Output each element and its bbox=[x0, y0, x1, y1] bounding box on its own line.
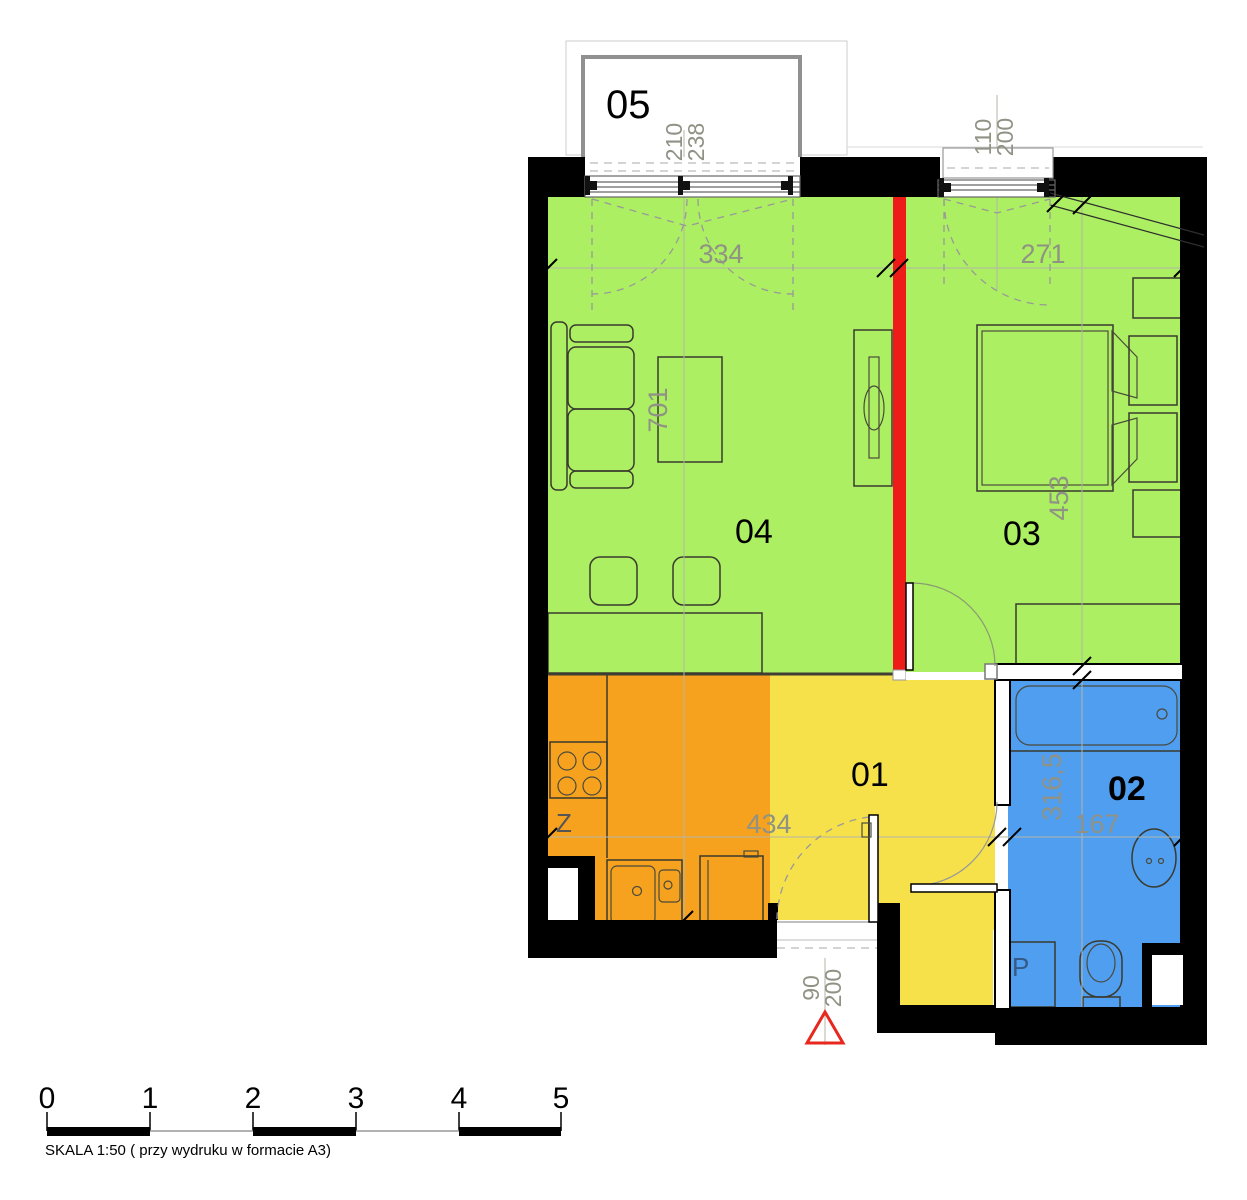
washer-label: P bbox=[1012, 952, 1029, 982]
shaft-wall bbox=[1142, 943, 1152, 1007]
room-03-doorway-floor bbox=[906, 664, 995, 672]
wall-right bbox=[1180, 157, 1207, 1045]
scale-tick-label: 3 bbox=[348, 1082, 365, 1115]
room-label-05: 05 bbox=[606, 83, 651, 127]
dim-label: 200 bbox=[820, 969, 846, 1007]
wall-bottom-kitchen bbox=[528, 920, 777, 958]
scale-tick-label: 1 bbox=[142, 1082, 159, 1115]
wall-bottom-bath bbox=[995, 1007, 1207, 1045]
bathroom-door-leaf bbox=[911, 884, 997, 892]
dim-label: 271 bbox=[1020, 239, 1065, 269]
doorway-threshold bbox=[906, 672, 995, 680]
wall-top-middle bbox=[800, 157, 940, 197]
partition-bath-left-upper bbox=[995, 680, 1010, 805]
scale-segment bbox=[47, 1127, 150, 1136]
scale-tick-label: 0 bbox=[39, 1082, 56, 1115]
door-jamb-block bbox=[985, 664, 997, 679]
entry-door-jamb bbox=[768, 903, 778, 922]
dim-label: 701 bbox=[643, 387, 673, 432]
dim-label: 434 bbox=[746, 809, 791, 839]
scale-bar: 0 1 2 3 4 5 SKALA 1:50 ( przy wydruku w … bbox=[39, 1082, 570, 1159]
scale-segment bbox=[253, 1127, 356, 1136]
scale-caption: SKALA 1:50 ( przy wydruku w formacie A3) bbox=[45, 1142, 331, 1159]
dim-label: 238 bbox=[683, 123, 709, 161]
scale-tick-label: 2 bbox=[245, 1082, 262, 1115]
room-label-02: 02 bbox=[1108, 770, 1146, 808]
dim-label: 334 bbox=[698, 239, 743, 269]
floor-plan-drawing: 334 271 434 167 701 453 316,5 210 238 11… bbox=[0, 0, 1247, 1200]
scale-segment bbox=[459, 1127, 561, 1136]
entry-opening bbox=[777, 920, 877, 958]
wall-left bbox=[528, 197, 548, 920]
room-floors bbox=[548, 197, 1183, 1007]
dim-label: 167 bbox=[1074, 809, 1119, 839]
floor-plan-page: 334 271 434 167 701 453 316,5 210 238 11… bbox=[0, 0, 1247, 1200]
room-label-04: 04 bbox=[735, 513, 773, 551]
shaft-wall bbox=[578, 868, 595, 920]
installation-shaft bbox=[548, 868, 578, 920]
scale-tick-label: 5 bbox=[553, 1082, 570, 1115]
installation-shaft bbox=[1152, 955, 1183, 1005]
wall-top-left bbox=[528, 157, 585, 197]
scale-numbers: 0 1 2 3 4 5 bbox=[39, 1082, 570, 1115]
wall-entry-bottom bbox=[877, 1005, 995, 1033]
hall-entry-floor bbox=[900, 920, 993, 1007]
bedroom-door-leaf bbox=[906, 583, 913, 670]
red-wall-end-cap bbox=[893, 670, 906, 680]
entry-door-leaf bbox=[869, 815, 878, 922]
room-label-01: 01 bbox=[851, 756, 889, 794]
partition-bath-left-lower bbox=[995, 890, 1010, 1009]
sink-label: Z bbox=[556, 808, 572, 838]
dim-label: 200 bbox=[992, 118, 1018, 156]
shaft-wall bbox=[548, 856, 595, 868]
dim-label: 453 bbox=[1044, 475, 1074, 520]
room-label-03: 03 bbox=[1003, 515, 1041, 553]
scale-tick-label: 4 bbox=[451, 1082, 468, 1115]
dim-label: 316,5 bbox=[1037, 753, 1067, 821]
